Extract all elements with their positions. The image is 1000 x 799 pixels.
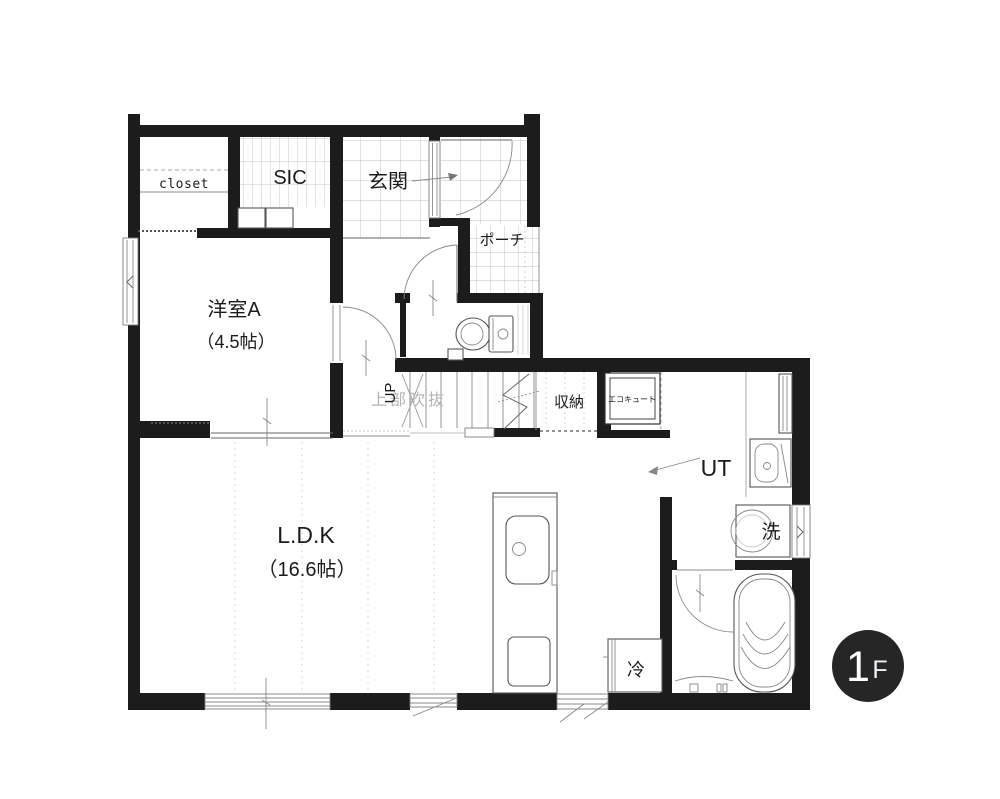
stair-bottom-step — [465, 428, 494, 437]
floor-plan-drawing: closet SIC 玄関 ポーチ 洋室A （4.5帖） 上部吹抜 UP 収納 … — [0, 0, 1000, 799]
bathroom — [675, 570, 795, 692]
floor-badge-suffix: F — [872, 656, 887, 684]
utility-entry-arrow — [648, 458, 700, 475]
ldk-size: （16.6帖） — [258, 558, 357, 581]
ldk-sliding-window — [205, 678, 330, 729]
washbasin — [750, 439, 791, 487]
ldk-window-2 — [410, 694, 457, 716]
sic-shoe-shelves — [238, 208, 293, 228]
stairs-up-label: UP — [382, 383, 399, 404]
shower-fixture-icon — [690, 684, 698, 692]
bath-counter-line — [675, 677, 733, 682]
storage-label: 収納 — [554, 394, 584, 411]
entrance-label: 玄関 — [368, 170, 408, 193]
closet-label: closet — [159, 177, 209, 192]
porch-label: ポーチ — [479, 232, 524, 249]
entry-door-tile-floor — [441, 138, 527, 224]
ldk-label: L.D.K — [277, 522, 335, 548]
washer-label: 洗 — [761, 521, 780, 543]
west-room-size: （4.5帖） — [196, 332, 275, 352]
kitchen-stove — [508, 637, 550, 686]
bathroom-door-arc — [676, 575, 733, 632]
utility-cabinet — [779, 374, 792, 433]
sic-label: SIC — [273, 167, 306, 189]
stair-break-line — [503, 374, 529, 429]
ldk-window-3 — [557, 694, 608, 722]
bathtub — [734, 574, 795, 692]
west-room-label: 洋室A — [207, 298, 261, 321]
utility-window — [792, 505, 810, 558]
ecocute-label: エコキュート — [608, 395, 656, 404]
toilet-door — [404, 245, 457, 316]
floor-plan-page: closet SIC 玄関 ポーチ 洋室A （4.5帖） 上部吹抜 UP 収納 … — [0, 0, 1000, 799]
floor-badge: 1 F — [832, 630, 904, 702]
fridge-label: 冷 — [627, 660, 645, 680]
kitchen-counter — [493, 493, 557, 693]
toilet-fixture — [448, 305, 528, 360]
floor-badge-number: 1 — [846, 643, 870, 691]
utility-label: UT — [701, 455, 732, 481]
west-window — [123, 238, 138, 325]
